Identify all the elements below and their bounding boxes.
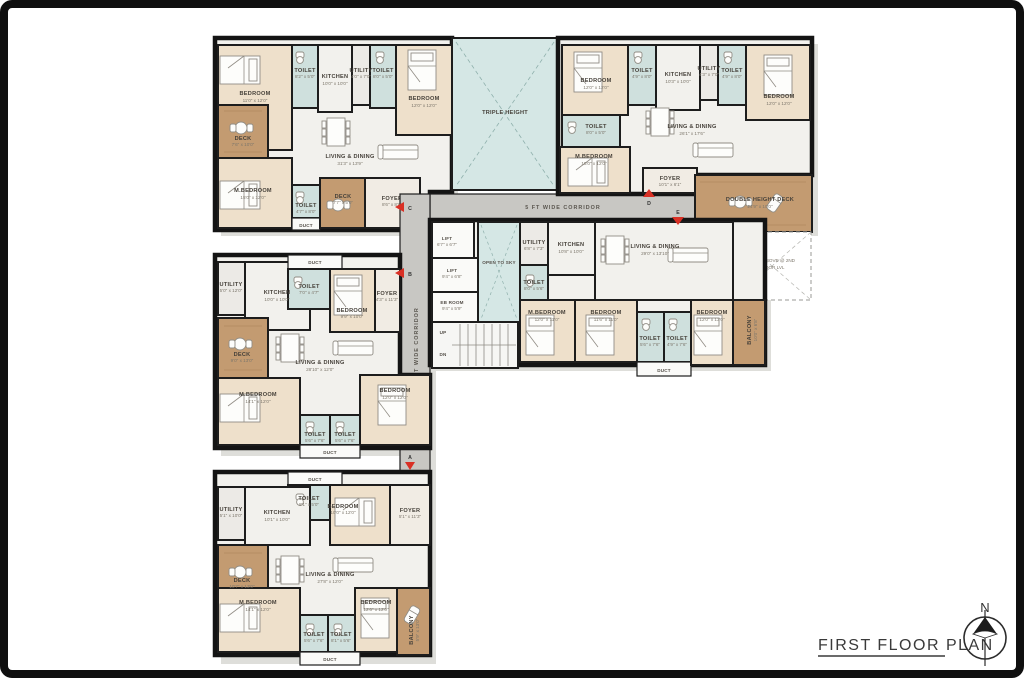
room-label: KITCHEN [264,290,291,296]
triple-height-void: TRIPLE HEIGHT [452,38,558,190]
room-dims: 4'9" x 7'6" [667,342,687,347]
corridor-label-vertical: 5 FT WIDE CORRIDOR [414,307,420,383]
room-label: LIVING & DINING [667,124,716,130]
room-label: BEDROOM [697,310,728,316]
unit-left-middle: UTILITY 5'0" x 12'0" KITCHEN 10'0" x 10'… [215,255,430,458]
sofa-icon [693,143,733,157]
room-dims: 12'0" x 12'0" [411,103,437,108]
void-label: TRIPLE HEIGHT [482,110,528,116]
room-label: BEDROOM [764,94,795,100]
room-label: KITCHEN [665,72,692,78]
room-dims: 10'0" x 10'0" [264,297,290,302]
sofa-icon [333,558,373,572]
room-dims: 5'1" x 10'0" [220,513,243,518]
room-dims: 5'0" x 12'0" [220,288,243,293]
room-dims: 4'7" x 8'0" [296,209,316,214]
room-dims: 11'6" x 11'0" [594,317,619,322]
room-dims: 5'1" x 11'3" [399,514,422,519]
room-dims: 10'1" x 10'0" [264,517,290,522]
section-marker-b-label: B [408,272,412,278]
room-label: LIFT [447,268,458,273]
stair-dn-label: DN [439,352,447,357]
room-label: BEDROOM [591,310,622,316]
room-dims: 4'0" x 7'0" [351,74,371,79]
dining-table-icon [322,118,350,146]
toilet-fixture-icon [669,319,677,330]
room-dims: 9'9" x 10'0" [341,314,364,319]
room-dims: 5'6" x 7'6" [304,638,324,643]
room-label: BEDROOM [581,78,612,84]
room-label: M.BEDROOM [575,154,613,160]
section-marker-a-label: A [408,455,412,461]
bed-icon [764,55,792,95]
dining-table-icon [276,334,304,362]
room-label: M.BEDROOM [528,310,566,316]
toilet-fixture-icon [568,122,576,133]
dining-table-icon [276,556,304,584]
room-label: DUCT [299,223,313,228]
room-dims: 4'9" x 8'0" [632,74,652,79]
toilet-fixture-icon [642,319,650,330]
room-dims: 10'3" x 10'0" [665,79,691,84]
room-label: DUCT [657,368,671,373]
room-dims: 4'3" x 7'0" [699,72,719,77]
room-dims: 7'0" x 4'7" [299,290,319,295]
room-dims: 8'0" x 5'0" [586,130,606,135]
toilet-fixture-icon [634,52,642,63]
room-dims: 8'1" x 5'0" [299,502,319,507]
room-dims: 5'6" x 7'6" [305,438,325,443]
room-label: DOUBLE HEIGHT DECK [726,197,794,203]
room-dims: 10'0" x 12'0" [330,510,356,515]
round-table-icon [229,566,252,578]
dining-table-icon [601,236,629,264]
room-dims: 4'9" x 8'0" [722,74,742,79]
section-marker-c-label: C [408,206,412,212]
room-dims: 14'1" x 12'0" [245,399,271,404]
room-label: BEDROOM [409,96,440,102]
room-label: DUCT [323,657,337,662]
room-dims: 26'1" x 17'6" [679,131,705,136]
unit-bottom-left: DUCT TOILET 8'1" x 5'0" UTILITY 5'1" x 1… [215,472,430,665]
toilet-fixture-icon [296,192,304,203]
toilet-fixture-icon [376,52,384,63]
room-dims: 8'0" x 5'6" [524,286,544,291]
bed-icon [408,50,436,90]
room-label: DUCT [323,450,337,455]
room-label: BEDROOM [240,91,271,97]
round-table-icon [230,122,253,134]
room-dims: 12'0" x 11'0" [535,317,560,322]
room-label: LIVING & DINING [630,244,679,250]
room-label: KITCHEN [322,74,349,80]
room-dims: 10'0" x 6'8" [753,318,758,341]
room-dims: 9'4" x 5'9" [442,306,462,311]
room-label: KITCHEN [558,242,585,248]
room-dims: 28'10" x 12'0" [306,367,334,372]
section-marker-e-label: E [676,210,680,216]
drawing-title: FIRST FLOOR PLAN [818,637,994,654]
bed-icon [220,56,260,84]
void-label: OPEN TO SKY [482,260,516,265]
toilet-fixture-icon [296,52,304,63]
room-dims: 6'8" x 7'3" [524,246,544,251]
room-dims: 11'0" x 12'0" [243,98,268,103]
room-dims: 9'4" x 6'8" [442,274,462,279]
corridor-label: 5 FT WIDE CORRIDOR [525,205,601,211]
room-dims: 10'8" x 10'0" [558,249,584,254]
core-and-unit-middle-right: UTILITY 6'8" x 7'3" KITCHEN 10'8" x 10'0… [430,220,765,376]
room-label: LIVING & DINING [325,154,374,160]
dining-table-icon [646,108,674,136]
room-label: BEDROOM [361,600,392,606]
room-dims: 6'7" x 6'7" [437,242,457,247]
room-dims: 15'0" x 12'0" [581,161,607,166]
floor-plan-page: { "footer": { "title": "FIRST FLOOR PLAN… [0,0,1024,678]
room-label: DUCT [308,477,322,482]
room-dims: 15'0" x 12'0" [240,195,266,200]
room-dims: 14'1" x 12'0" [245,607,271,612]
room-dims: 12'0" x 13'0" [699,317,725,322]
sofa-icon [333,341,373,355]
toilet-fixture-icon [724,52,732,63]
room-dims: 5'6" x 7'6" [335,438,355,443]
room-dims: 9'0" x 13'0" [231,358,254,363]
sofa-icon [668,248,708,262]
room-dims: 12'0" x 12'0" [766,101,792,106]
room-dims: 5'9" x 13'0" [415,618,420,641]
room-label: M.BEDROOM [234,188,272,194]
room-label: M.BEDROOM [239,392,277,398]
room-dims: 12'0" x 12'0" [382,395,408,400]
stair-up-label: UP [440,330,447,335]
room-label: BEDROOM [380,388,411,394]
room-dims: 12'6" x 12'0" [363,607,389,612]
room-dims: 12'0" x 12'0" [583,85,609,90]
room-dims: 27'8" x 12'0" [317,579,343,584]
room-dims: 31'3" x 13'9" [337,161,363,166]
room-dims: 10'1" x 6'1" [659,182,682,187]
room-dims: 10'0" x 10'0" [322,81,348,86]
floor-plan-canvas: BEDROOM 11'0" x 12'0" TOILET 8'2" x 5'0"… [0,0,1024,678]
room-dims: 8'1" x 5'6" [331,638,351,643]
sofa-icon [378,145,418,159]
room-dims: 7'7" x 5'0" [333,200,353,205]
room-dims: 4'3" x 11'3" [376,297,399,302]
room-dims: 5'6" x 7'6" [640,342,660,347]
room-label: DUCT [308,260,322,265]
room-label: LIVING & DINING [295,360,344,366]
round-table-icon [229,338,252,350]
room-dims: 24'9" x 10'0" [747,204,773,209]
section-marker-d-label: D [647,201,651,207]
room-dims: 8'2" x 5'0" [295,74,315,79]
room-label: EB ROOM [440,300,463,305]
room-label: LIVING & DINING [305,572,354,578]
room-dims: 29'0" x 13'10" [641,251,669,256]
room-label: M.BEDROOM [239,600,277,606]
room-dims: 7'6" x 10'0" [232,142,255,147]
room-label: KITCHEN [264,510,291,516]
room-dims: 10'7" x 13'0" [229,584,255,589]
room-label: LIFT [442,236,453,241]
room-dims: 8'0" x 5'0" [373,74,393,79]
